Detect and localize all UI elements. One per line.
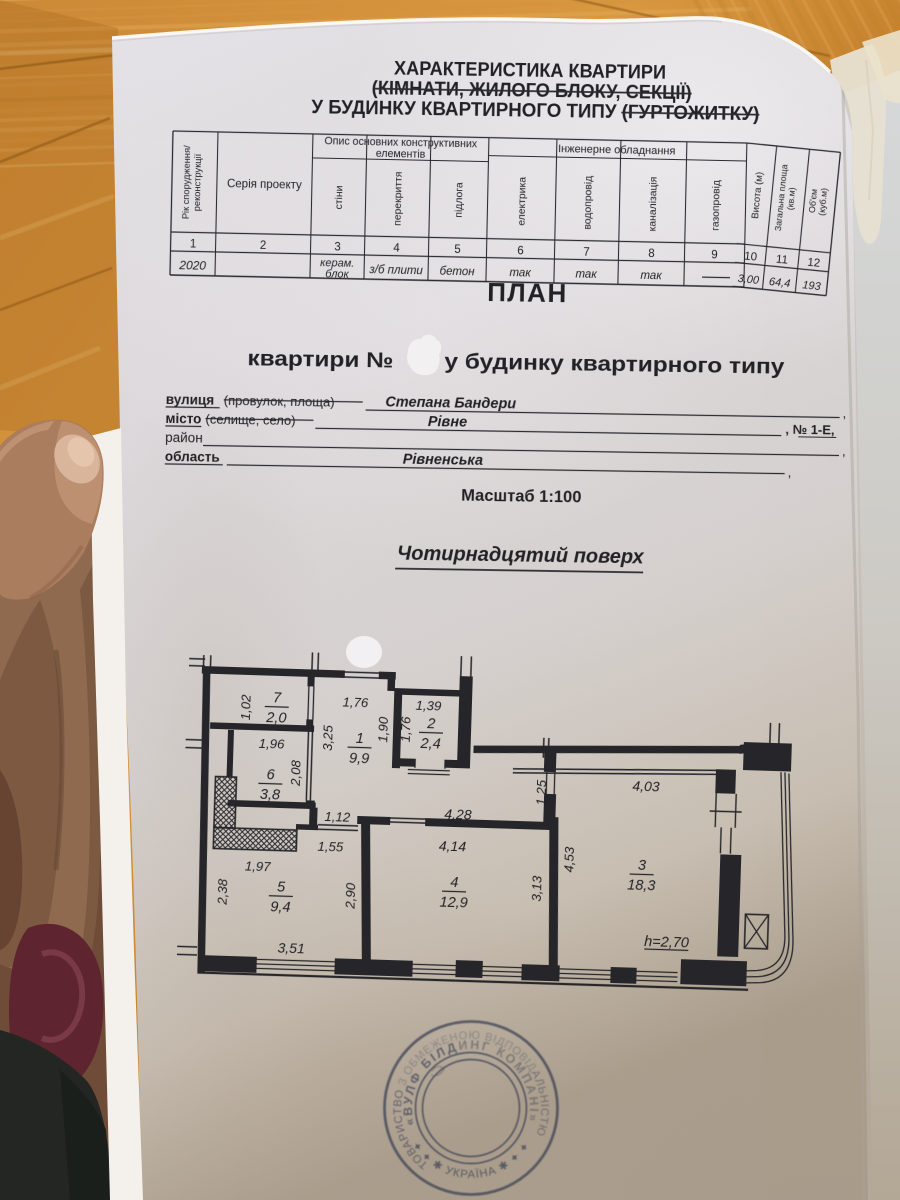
svg-text:1,90: 1,90 (375, 716, 391, 743)
svg-text:Чотирнадцятий поверх: Чотирнадцятий поверх (397, 543, 645, 569)
svg-text:Рівне: Рівне (428, 414, 468, 431)
svg-text:5: 5 (277, 880, 286, 896)
svg-text:10: 10 (744, 250, 758, 263)
svg-text:12,9: 12,9 (439, 895, 468, 912)
svg-text:водопровід: водопровід (583, 176, 595, 230)
svg-text:1,12: 1,12 (324, 809, 351, 825)
svg-text:1: 1 (355, 731, 364, 747)
svg-text:2,4: 2,4 (419, 736, 441, 753)
svg-text:елементів: елементів (376, 148, 426, 161)
svg-text:6: 6 (517, 245, 524, 257)
svg-text:1,02: 1,02 (238, 694, 254, 721)
svg-text:перекриття: перекриття (393, 172, 405, 226)
svg-text:так: так (640, 270, 662, 282)
svg-text:1,76: 1,76 (342, 694, 369, 710)
svg-text:Масштаб 1:100: Масштаб 1:100 (461, 487, 582, 507)
svg-text:9: 9 (711, 249, 718, 261)
svg-text:4,53: 4,53 (561, 846, 577, 873)
svg-text:газопровід: газопровід (711, 180, 723, 231)
svg-text:1,97: 1,97 (245, 858, 272, 874)
svg-text:район: район (165, 430, 203, 446)
svg-text:3,51: 3,51 (277, 940, 305, 957)
svg-text:Рівненська: Рівненська (403, 452, 484, 469)
svg-text:3,00: 3,00 (737, 273, 760, 287)
svg-text:64,4: 64,4 (768, 276, 791, 290)
svg-text:1,25: 1,25 (533, 779, 549, 806)
svg-text:підлога: підлога (454, 182, 466, 218)
svg-text:електрика: електрика (517, 177, 529, 226)
svg-text:9,9: 9,9 (349, 751, 370, 768)
svg-text:4,03: 4,03 (632, 778, 660, 795)
svg-text:2,08: 2,08 (288, 759, 304, 787)
svg-text:8: 8 (648, 248, 655, 260)
svg-text:9,4: 9,4 (270, 899, 291, 916)
svg-text:7: 7 (583, 247, 590, 259)
svg-text:бетон: бетон (440, 266, 476, 279)
svg-text:1,96: 1,96 (259, 736, 286, 752)
svg-text:Інженерне обладнання: Інженерне обладнання (558, 143, 676, 157)
svg-text:2: 2 (260, 240, 267, 252)
svg-text:2,0: 2,0 (265, 710, 287, 727)
svg-text:7: 7 (273, 690, 282, 706)
svg-text:6: 6 (266, 767, 275, 783)
svg-text:3: 3 (334, 241, 341, 253)
svg-text:1,76: 1,76 (398, 716, 414, 743)
svg-text:Серія проекту: Серія проекту (227, 178, 302, 192)
svg-text:реконструкції: реконструкції (192, 153, 203, 211)
svg-text:Рік спорудження/: Рік спорудження/ (181, 145, 193, 219)
svg-text:18,3: 18,3 (627, 878, 656, 895)
svg-text:стіни: стіни (334, 185, 346, 209)
svg-text:12: 12 (807, 257, 821, 270)
svg-text:4,28: 4,28 (444, 806, 472, 823)
svg-text:4: 4 (450, 875, 459, 891)
svg-text:2,38: 2,38 (215, 878, 231, 906)
svg-text:блок: блок (325, 268, 350, 281)
svg-text:2020: 2020 (178, 258, 206, 273)
svg-text:Степана Бандери: Степана Бандери (385, 394, 516, 412)
svg-text:вулиця: вулиця (166, 392, 215, 408)
svg-text:,: , (842, 444, 846, 459)
svg-text:3,8: 3,8 (260, 787, 281, 804)
svg-text:область: область (165, 449, 220, 465)
svg-text:,: , (843, 406, 847, 421)
svg-text:ПЛАН: ПЛАН (487, 277, 568, 308)
svg-text:каналізація: каналізація (648, 177, 660, 232)
svg-text:, № 1-Е,: , № 1-Е, (785, 422, 834, 438)
svg-text:так: так (575, 268, 597, 280)
svg-text:3: 3 (638, 858, 647, 874)
svg-text:4,14: 4,14 (439, 838, 467, 855)
svg-text:2,90: 2,90 (343, 882, 359, 910)
svg-text:4: 4 (393, 243, 400, 255)
svg-text:квартири №: квартири № (247, 346, 393, 372)
svg-text:3,13: 3,13 (529, 875, 545, 902)
svg-text:1: 1 (190, 238, 197, 250)
svg-text:2: 2 (426, 716, 436, 732)
svg-text:11: 11 (775, 254, 788, 267)
svg-text:місто: місто (165, 411, 201, 427)
svg-text:1,39: 1,39 (415, 698, 442, 714)
svg-text:193: 193 (802, 279, 822, 293)
svg-text:5: 5 (454, 244, 461, 256)
svg-text:1,55: 1,55 (317, 839, 344, 855)
svg-text:,: , (788, 465, 792, 480)
svg-text:з/б плити: з/б плити (368, 264, 423, 277)
svg-text:3,25: 3,25 (320, 724, 336, 751)
